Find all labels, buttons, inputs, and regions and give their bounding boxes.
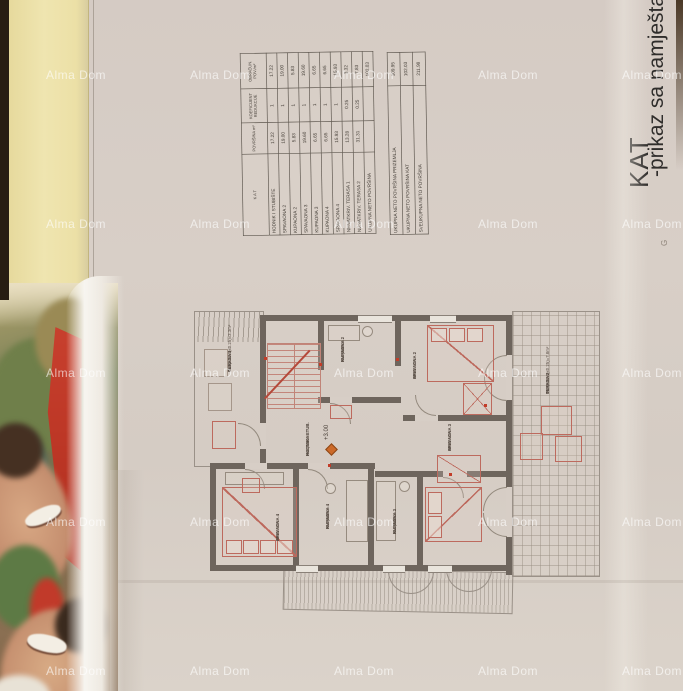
summary-row: SVEUKUPNA NETO POVRŠINA 211.98	[412, 52, 428, 234]
area-cell-koeficijent: 1	[277, 88, 288, 122]
pillow	[431, 328, 447, 342]
door-swing-arc	[415, 395, 436, 416]
area-cell-povrsina	[363, 121, 374, 152]
watermark: Alma Dom	[334, 366, 394, 380]
watermark: Alma Dom	[190, 515, 250, 529]
floor-plan-drawing: +3.00 TERASA 1 P=13.3m² (x0.25)=3.3m² ke…	[188, 303, 628, 633]
wall-bottom	[210, 565, 512, 571]
bath4-sink	[325, 483, 336, 494]
window	[430, 315, 456, 323]
pillow	[277, 540, 293, 554]
area-cell-koeficijent: 1	[320, 88, 331, 122]
door-gap	[330, 397, 352, 403]
planter	[208, 383, 232, 411]
watermark: Alma Dom	[46, 366, 106, 380]
door-swing-arc	[483, 487, 507, 511]
area-cell-koeficijent: 1	[299, 88, 310, 122]
wall-bath3-bed3	[417, 471, 423, 571]
area-cell-povrsina: 31.31	[353, 121, 364, 152]
door-gap	[308, 463, 330, 469]
page-curl-edge	[66, 276, 124, 691]
watermark: Alma Dom	[622, 366, 682, 380]
hall-furniture	[330, 405, 352, 419]
corner-letter: G	[660, 240, 669, 246]
pillow	[467, 328, 483, 342]
watermark: Alma Dom	[46, 664, 106, 678]
window	[296, 565, 318, 573]
planter	[520, 433, 543, 460]
stair-midline	[294, 344, 295, 408]
area-cell-povrsina: 17.22	[267, 122, 278, 153]
watermark: Alma Dom	[190, 68, 250, 82]
planter	[555, 436, 582, 462]
bath2-sink	[362, 326, 373, 337]
summary-label: SVEUKUPNA NETO POVRŠINA	[413, 85, 428, 234]
window	[383, 565, 405, 573]
area-table-header-koeficijent: KOEFICIJENT REDUKCIJE	[241, 89, 268, 123]
wardrobe-cross	[438, 456, 480, 482]
watermark: Alma Dom	[46, 68, 106, 82]
summary-value: 102.03	[400, 52, 413, 86]
table-bedroom4	[242, 478, 260, 493]
watermark: Alma Dom	[190, 664, 250, 678]
paper-fold-line	[93, 0, 94, 290]
corner-mark	[264, 357, 267, 360]
area-cell-koeficijent: 1	[288, 88, 299, 122]
watermark: Alma Dom	[478, 664, 538, 678]
watermark: Alma Dom	[622, 515, 682, 529]
stair-direction-arrow	[264, 350, 310, 400]
window	[428, 565, 452, 573]
area-cell-obracun: 5.83	[287, 53, 298, 89]
corner-mark	[449, 473, 452, 476]
area-cell-povrsina: 13.28	[342, 121, 353, 152]
watermark: Alma Dom	[334, 664, 394, 678]
yellow-page-edge	[8, 0, 89, 292]
watermark: Alma Dom	[334, 515, 394, 529]
door-gap	[245, 463, 267, 469]
area-cell-obracun: 6.65	[320, 52, 331, 88]
dark-left-edge	[0, 0, 9, 300]
staircase	[267, 343, 321, 409]
pillow	[226, 540, 242, 554]
watermark: Alma Dom	[46, 515, 106, 529]
pillow	[428, 516, 442, 538]
planter	[541, 406, 572, 435]
watermark: Alma Dom	[334, 217, 394, 231]
area-cell-koeficijent: 0.25	[341, 87, 352, 121]
bath3-sink	[399, 481, 410, 492]
pillow	[428, 492, 442, 514]
area-cell-koeficijent: 1	[267, 89, 278, 123]
area-table-header-povrsina: POVRŠINA m²	[241, 123, 268, 154]
corner-mark	[319, 363, 322, 366]
watermark: Alma Dom	[478, 68, 538, 82]
summary-value: 211.98	[412, 52, 425, 86]
floor-subtitle: -prikaz sa namještajem	[645, 0, 669, 177]
area-cell-obracun: 17.22	[266, 53, 277, 89]
watermark: Alma Dom	[190, 366, 250, 380]
area-cell-povrsina: 15.93	[331, 121, 342, 152]
area-cell-koeficijent: 1	[331, 88, 342, 122]
wardrobe-bedroom2	[463, 383, 492, 415]
watermark: Alma Dom	[478, 217, 538, 231]
wardrobe-bedroom3	[437, 455, 481, 483]
watermark: Alma Dom	[622, 217, 682, 231]
bathtub-bath4	[346, 480, 368, 542]
wardrobe-cross	[464, 384, 491, 414]
pillow	[449, 328, 465, 342]
watermark: Alma Dom	[46, 217, 106, 231]
area-cell-povrsina: 6.65	[310, 122, 321, 153]
area-cell-koeficijent: 0.25	[352, 87, 363, 121]
watermark: Alma Dom	[190, 217, 250, 231]
corner-mark	[396, 358, 399, 361]
area-cell-koeficijent	[363, 87, 374, 121]
watermark: Alma Dom	[478, 515, 538, 529]
bed-bedroom3	[425, 487, 482, 542]
level-marker-icon	[325, 443, 338, 456]
dark-right-edge	[676, 0, 683, 170]
watermark: Alma Dom	[334, 68, 394, 82]
watermark: Alma Dom	[478, 366, 538, 380]
scanned-floorplan-photo: KAT -prikaz sa namještajem G K A T POVRŠ…	[0, 0, 683, 691]
pillow	[260, 540, 276, 554]
area-cell-koeficijent: 1	[309, 88, 320, 122]
watermark: Alma Dom	[622, 68, 682, 82]
corner-mark	[328, 464, 331, 467]
planter	[212, 421, 236, 449]
area-cell-povrsina: 19.00	[278, 122, 289, 153]
area-cell-obracun: 19.60	[298, 52, 309, 88]
area-cell-povrsina: 5.83	[289, 122, 300, 153]
window	[358, 315, 392, 323]
watermark: Alma Dom	[622, 664, 682, 678]
area-cell-povrsina: 19.60	[299, 122, 310, 153]
area-cell-obracun: 19.00	[277, 53, 288, 89]
corner-mark	[484, 404, 487, 407]
level-mark: +3.00	[324, 418, 330, 440]
pillow	[243, 540, 259, 554]
area-cell-obracun: 6.65	[309, 52, 320, 88]
area-cell-povrsina: 6.65	[321, 122, 332, 153]
